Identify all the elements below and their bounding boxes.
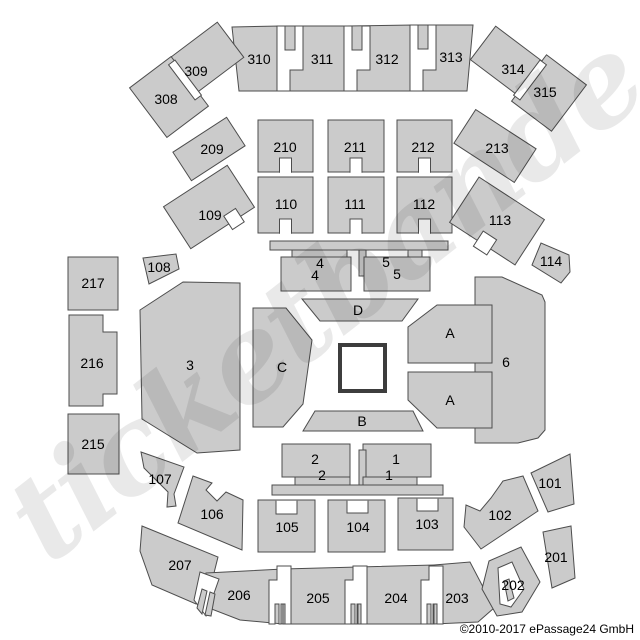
section-203-label: 203: [445, 590, 469, 606]
section-110-label: 110: [275, 196, 298, 212]
section-104-label: 104: [346, 519, 370, 535]
section-211-label: 211: [344, 139, 367, 155]
section-309-label: 309: [184, 63, 208, 79]
section-D-label: D: [353, 302, 363, 318]
section-209-label: 209: [200, 141, 224, 157]
section-111-label: 111: [344, 196, 365, 212]
vomitory-notch: [350, 158, 362, 173]
section-112-label: 112: [413, 196, 436, 212]
section-109-label: 109: [198, 207, 222, 223]
vomitory-notch: [347, 501, 368, 513]
entrance-tab: [408, 250, 422, 257]
section-311-label: 311: [311, 51, 334, 67]
section-202-label: 202: [501, 577, 525, 593]
section-216-label: 216: [80, 355, 104, 371]
section-A-lower-label: A: [445, 392, 455, 408]
vomitory-notch: [350, 219, 362, 234]
section-313-label: 313: [439, 49, 463, 65]
section-108-label: 108: [147, 259, 171, 275]
section-213-label: 213: [485, 140, 509, 156]
section-105-label: 105: [275, 519, 299, 535]
section-314-label: 314: [501, 61, 525, 77]
section-107-label: 107: [148, 471, 172, 487]
section-C-label: C: [277, 359, 287, 375]
section-106-label: 106: [200, 506, 224, 522]
vomitory-notch: [280, 219, 292, 234]
section-205-label: 205: [306, 590, 330, 606]
vomitory-notch: [417, 499, 438, 511]
section-201-label: 201: [544, 549, 568, 565]
copyright-notice: ©2010-2017 ePassage24 GmbH: [460, 622, 634, 636]
vomitory-notch: [276, 501, 297, 514]
section-2-upper-label: 2: [311, 451, 319, 467]
arena-seat-map: 308 309 310 311 312 313 314 315 209 210 …: [0, 0, 640, 640]
section-310-label: 310: [247, 51, 271, 67]
barrier-bar-top: [270, 241, 448, 250]
section-308-label: 308: [154, 91, 178, 107]
section-215-label: 215: [81, 436, 105, 452]
section-217-label: 217: [81, 275, 105, 291]
barrier-bar-bottom: [272, 485, 443, 495]
section-6-label: 6: [502, 354, 510, 370]
section-315-label: 315: [533, 84, 557, 100]
stage-ring: [340, 345, 385, 391]
seating-chart: 308 309 310 311 312 313 314 315 209 210 …: [0, 0, 640, 640]
section-3-label: 3: [186, 357, 194, 373]
section-114-label: 114: [540, 253, 563, 269]
section-4-lower-label: 4: [311, 267, 319, 283]
section-103-label: 103: [415, 516, 439, 532]
vomitory-notch: [419, 219, 431, 234]
section-312-label: 312: [375, 51, 399, 67]
section-2-lower-label: 2: [318, 467, 326, 483]
section-B-label: B: [357, 413, 366, 429]
section-1-lower-label: 1: [385, 467, 393, 483]
section-113-label: 113: [489, 212, 512, 228]
section-102-label: 102: [488, 507, 512, 523]
section-207-label: 207: [168, 557, 192, 573]
section-212-label: 212: [411, 139, 435, 155]
section-210-label: 210: [273, 139, 297, 155]
section-206-label: 206: [227, 587, 251, 603]
section-101-label: 101: [538, 475, 562, 491]
section-A-upper-label: A: [445, 325, 455, 341]
vomitory-notch: [280, 158, 292, 173]
section-1-upper-label: 1: [392, 451, 400, 467]
section-204-label: 204: [384, 590, 408, 606]
section-5-upper-label: 5: [382, 254, 390, 270]
vomitory-notch: [419, 158, 431, 173]
section-5-lower-label: 5: [393, 266, 401, 282]
